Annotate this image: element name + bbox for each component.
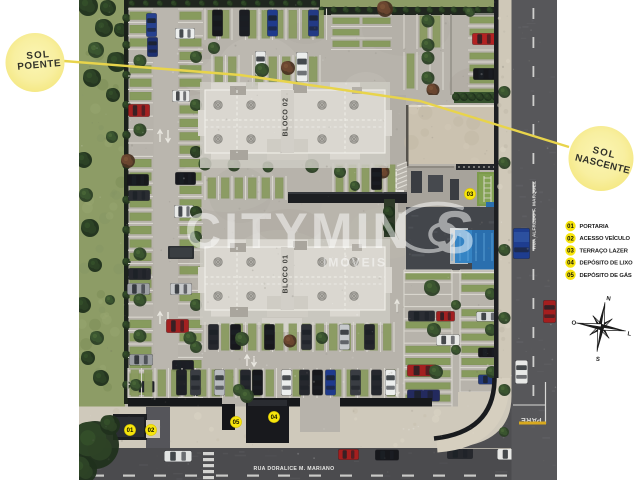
- svg-text:02: 02: [567, 236, 574, 242]
- svg-text:S: S: [435, 199, 475, 266]
- svg-text:RUA ALFREDO F. MARQUEZ: RUA ALFREDO F. MARQUEZ: [532, 181, 537, 249]
- svg-text:01: 01: [127, 428, 134, 434]
- svg-text:03: 03: [567, 249, 574, 255]
- svg-text:04: 04: [271, 415, 278, 421]
- svg-text:RUA DORALICE M. MARIANO: RUA DORALICE M. MARIANO: [253, 466, 334, 472]
- svg-text:ACESSO VEÍCULO: ACESSO VEÍCULO: [580, 234, 631, 242]
- svg-text:DEPÓSITO DE LIXO: DEPÓSITO DE LIXO: [580, 259, 634, 267]
- svg-text:01: 01: [567, 224, 574, 230]
- svg-text:PORTARIA: PORTARIA: [580, 224, 610, 230]
- svg-text:BLOCO 01: BLOCO 01: [283, 254, 290, 293]
- svg-text:CITYMIN: CITYMIN: [185, 203, 412, 259]
- svg-text:BLOCO 02: BLOCO 02: [283, 97, 290, 136]
- svg-text:02: 02: [148, 428, 155, 434]
- svg-text:05: 05: [567, 273, 574, 279]
- svg-text:03: 03: [467, 192, 474, 198]
- svg-text:05: 05: [233, 420, 240, 426]
- svg-text:DEPÓSITO DE GÁS: DEPÓSITO DE GÁS: [580, 271, 632, 279]
- svg-text:TERRAÇO LAZER: TERRAÇO LAZER: [580, 248, 629, 254]
- svg-text:04: 04: [567, 261, 574, 267]
- svg-text:N: N: [606, 296, 611, 303]
- svg-text:IMÓVEIS: IMÓVEIS: [323, 255, 387, 270]
